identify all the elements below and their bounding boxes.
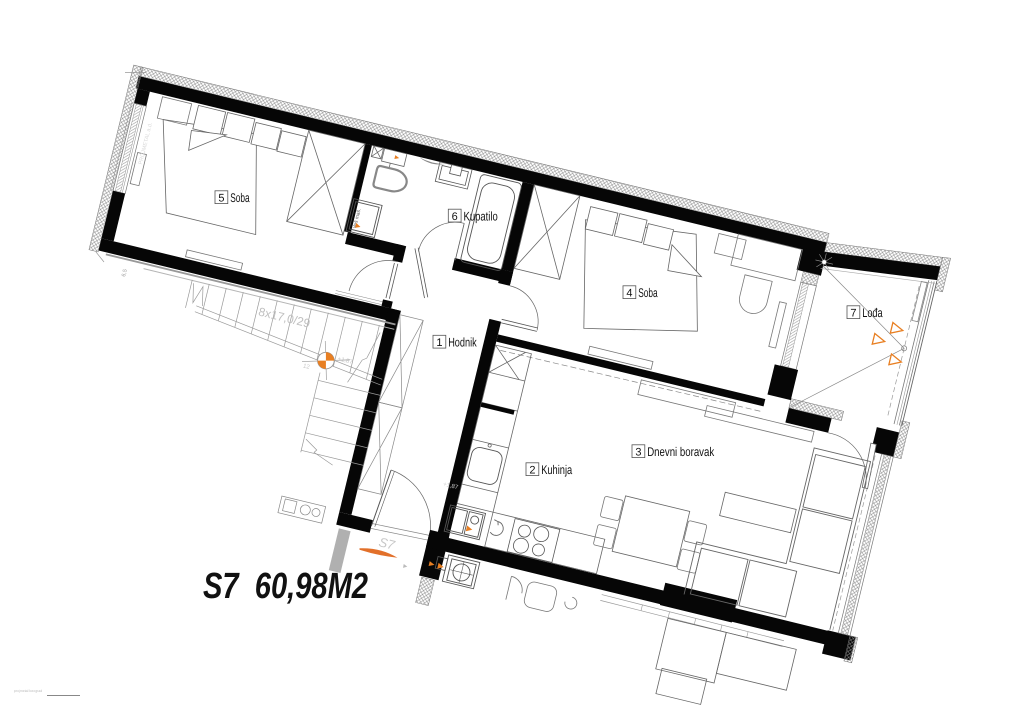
svg-text:5: 5 xyxy=(218,193,224,205)
svg-text:4: 4 xyxy=(626,288,632,300)
svg-text:2: 2 xyxy=(529,465,535,477)
svg-text:3: 3 xyxy=(635,447,641,459)
svg-text:S7 60,98M2: S7 60,98M2 xyxy=(203,565,368,606)
svg-text:Dnevni boravak: Dnevni boravak xyxy=(647,445,715,459)
svg-text:6: 6 xyxy=(452,211,458,223)
svg-text:Soba: Soba xyxy=(230,191,250,205)
svg-text:Kuhinja: Kuhinja xyxy=(541,463,572,477)
svg-text:Kupatilo: Kupatilo xyxy=(464,209,498,223)
svg-text:1: 1 xyxy=(436,337,442,349)
svg-text:Lođa: Lođa xyxy=(862,306,883,320)
svg-text:7: 7 xyxy=(850,308,856,320)
svg-text:Soba: Soba xyxy=(638,286,658,300)
svg-text:projmetal beograd: projmetal beograd xyxy=(14,689,42,693)
svg-text:Hodnik: Hodnik xyxy=(448,336,477,350)
